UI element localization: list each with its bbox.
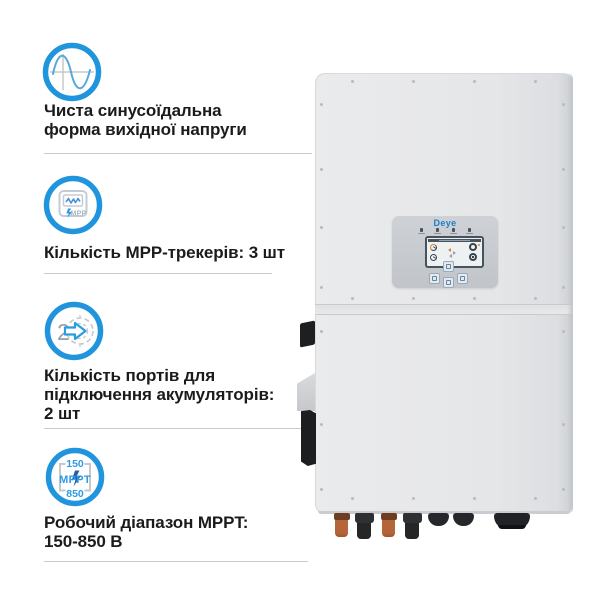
feature-line: 150-850 В [44,532,248,551]
feature-mpp-trackers-text: Кількість MPP-трекерів: 3 шт [44,243,285,262]
led-indicator [466,228,473,234]
side-plug [301,410,316,466]
cable-gland [428,513,449,526]
solar-gauge-icon [430,244,437,251]
dc-switch[interactable] [300,320,315,347]
range-icon-middle: MPPT [59,474,91,486]
feature-battery-ports-text: Кількість портів для підключення акумуля… [44,366,274,423]
battery-gauge-icon [430,254,437,261]
button-esc[interactable] [429,273,440,284]
feature-mppt-range-text: Робочий діапазон MPPT: 150-850 В [44,513,248,551]
case-seam [315,304,573,315]
range-icon-top: 150 [66,458,84,470]
feature-line: Кількість портів для [44,366,274,385]
load-gauge-icon [469,253,477,261]
lcd-screen [425,236,484,268]
led-indicator [450,228,457,234]
ac-output-gland [494,513,530,529]
case-edge [567,73,573,514]
grid-gauge-icon [469,243,477,251]
separator [44,561,308,562]
feature-line: підключення акумуляторів: [44,385,274,404]
pv-connector-orange [382,513,395,537]
mpp-icon-label: MPP [70,211,86,218]
lcd-header [428,239,481,242]
brand-logo: Deye [392,218,498,228]
led-indicator [418,228,425,234]
button-down[interactable] [443,277,454,288]
pv-connector-black [405,513,419,539]
flow-arrow-icon [446,248,451,252]
pv-connector-orange [335,513,348,537]
feature-line: Чиста синусоїдальна [44,101,247,120]
flow-arrow-icon [453,251,458,255]
lcd-status-dot [478,244,480,246]
button-up[interactable] [443,261,454,272]
flow-arrow-icon [447,254,452,258]
control-panel: Deye [392,216,498,288]
feature-line: форма вихідної напруги [44,120,247,139]
feature-line: 2 шт [44,404,274,423]
product-feature-image: Чиста синусоїдальна форма вихідної напру… [0,0,600,600]
separator [44,428,302,429]
screws [320,103,323,106]
side-junction-box [297,373,315,411]
cable-gland [453,513,474,526]
led-indicators [392,228,498,234]
range-icon-bottom: 850 [66,488,84,500]
mppt-range-icon: 150 MPPT 850 [45,447,105,507]
two-ports-icon: 2 [44,301,104,361]
led-indicator [434,228,441,234]
pv-connector-black [357,513,371,539]
separator [44,273,272,274]
mpp-tracker-icon: MPP [43,175,103,235]
inverter-photo: Deye [315,73,573,514]
sine-wave-icon [42,42,102,102]
feature-line: Кількість MPP-трекерів: 3 шт [44,243,285,262]
button-enter[interactable] [457,273,468,284]
separator [44,153,312,154]
feature-pure-sine-text: Чиста синусоїдальна форма вихідної напру… [44,101,247,139]
feature-line: Робочий діапазон MPPT: [44,513,248,532]
